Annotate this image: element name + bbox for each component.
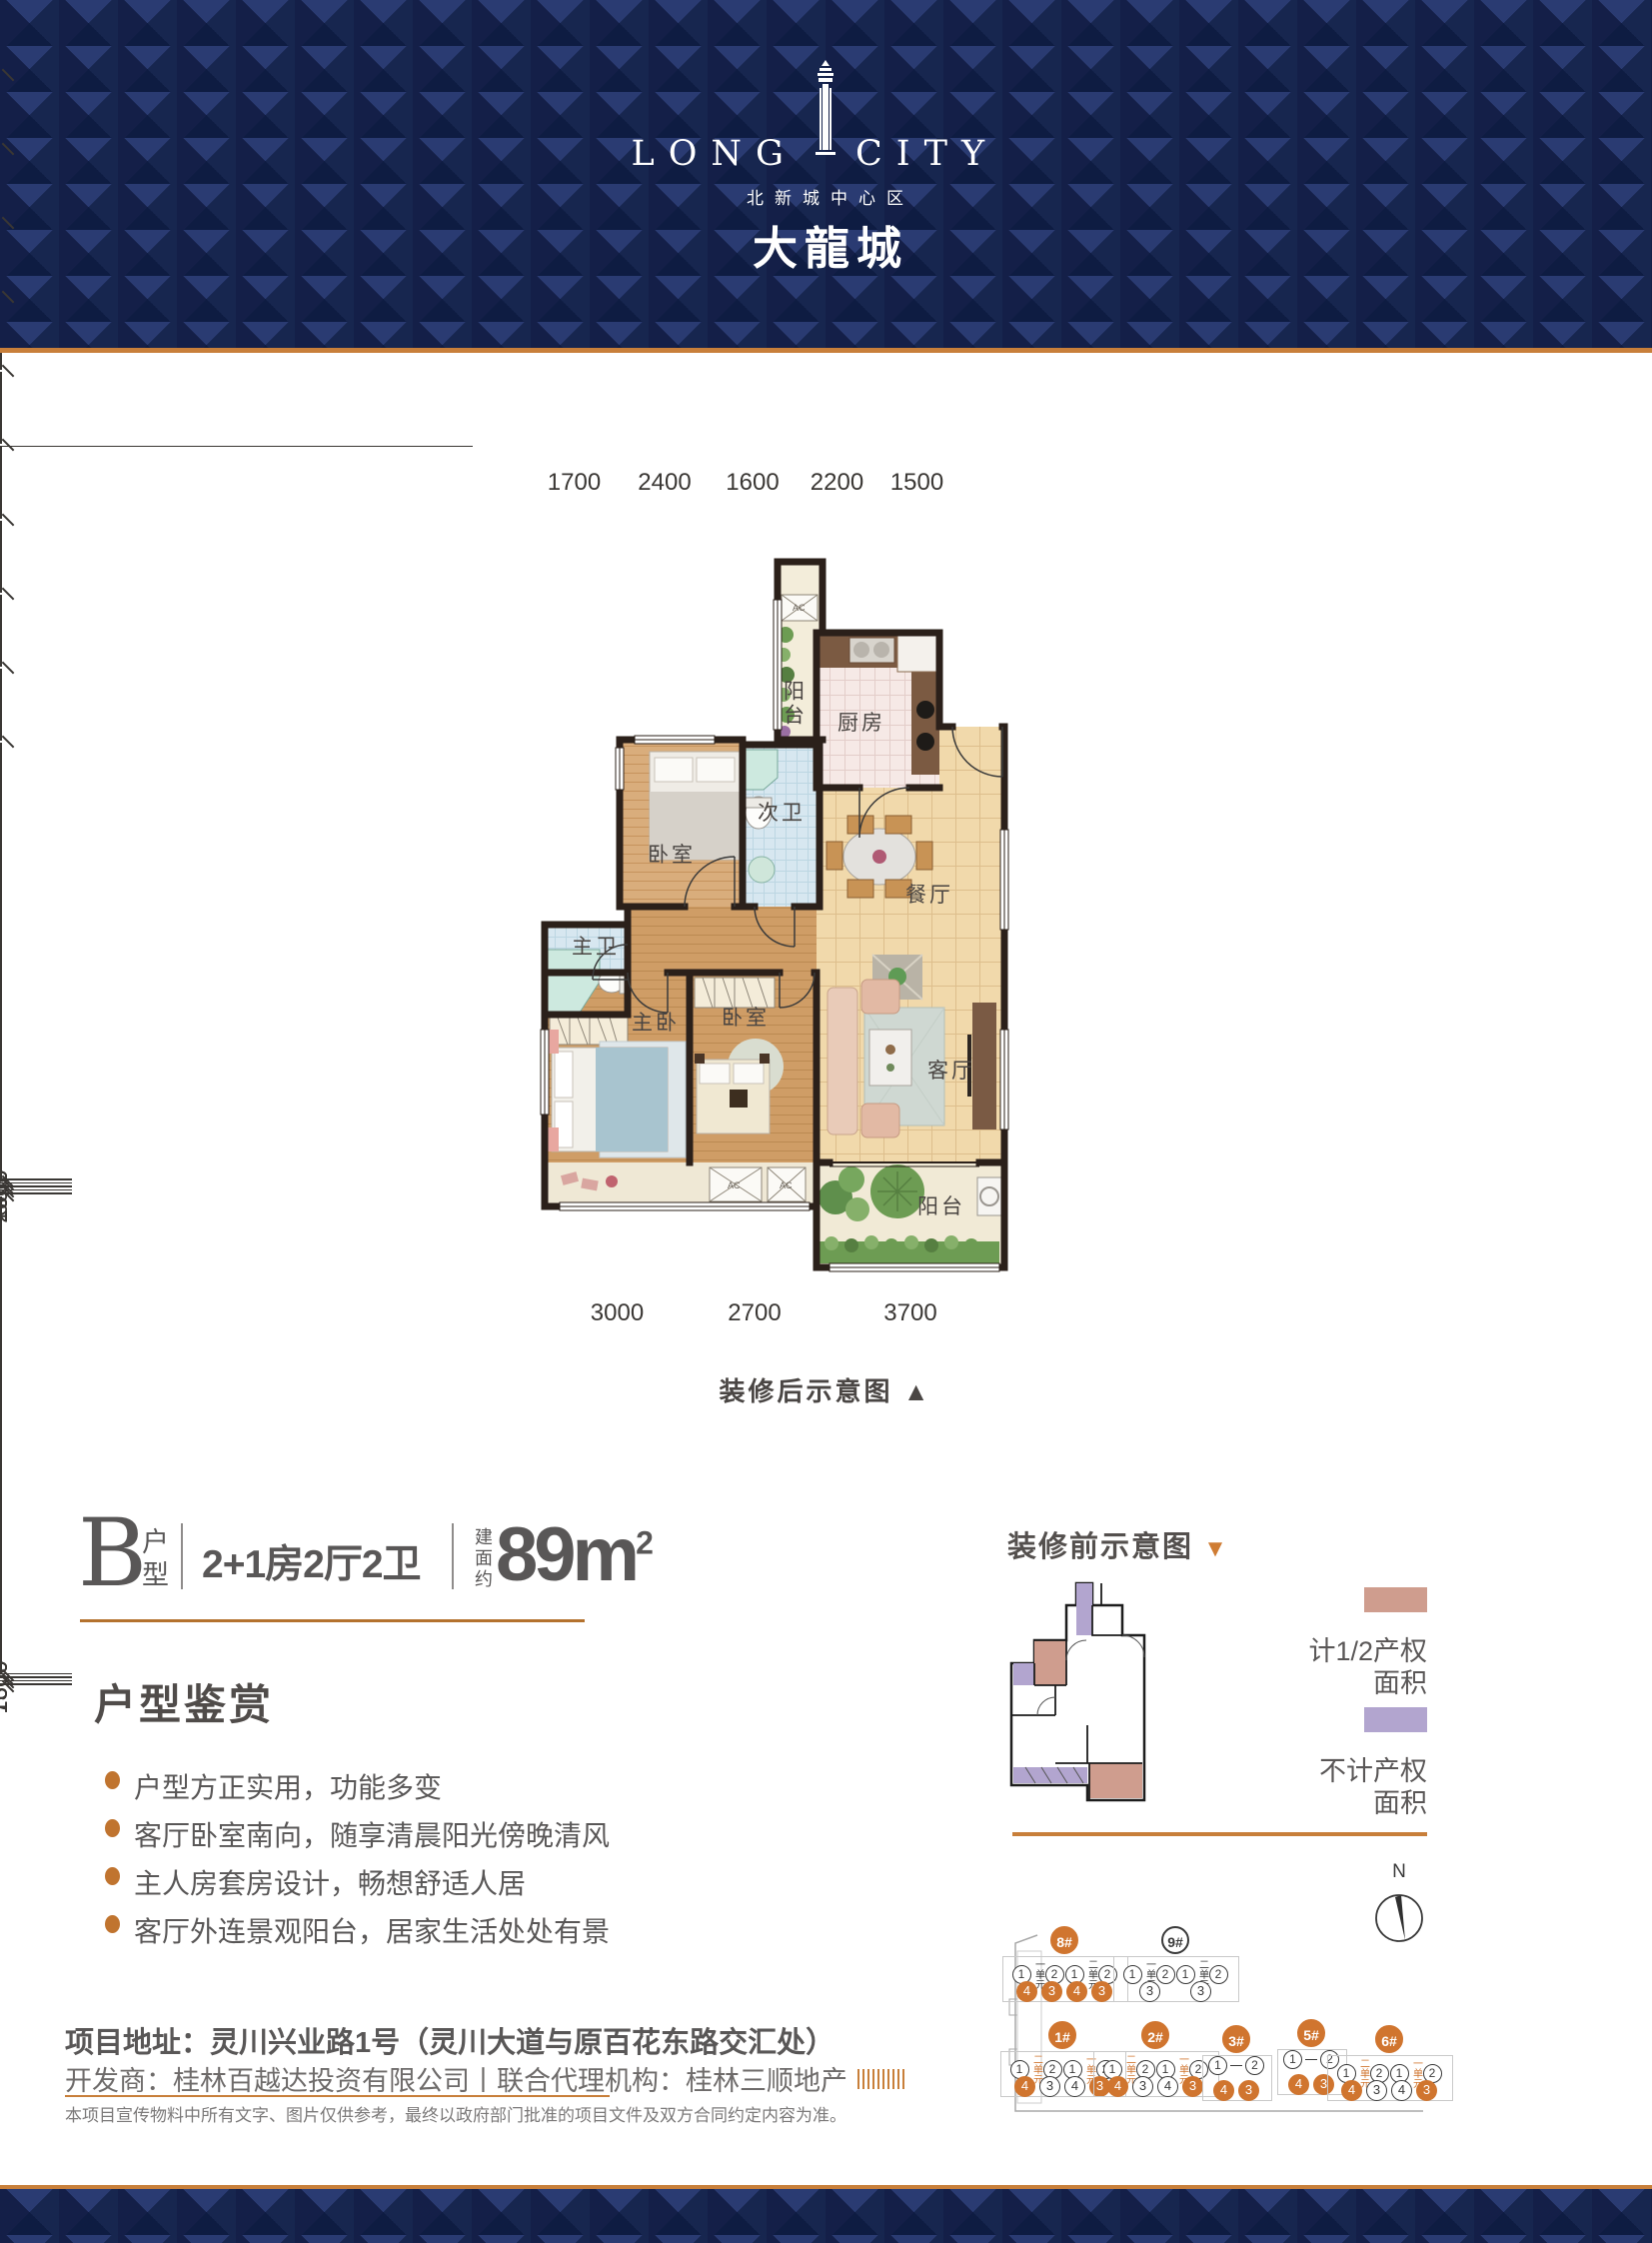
dim-slash-top xyxy=(2,438,15,451)
dim-label-text: 1600 xyxy=(0,1660,14,1713)
dim-tick-bottom xyxy=(0,595,2,667)
site-unit-circle: 3 xyxy=(1416,2080,1437,2101)
room-label-master: 主卧 xyxy=(632,1012,680,1035)
legend-label-no-rights-2: 面积 xyxy=(1227,1781,1427,1820)
site-unit-circle: 4 xyxy=(1014,2076,1035,2097)
room-label-bath-master: 主卫 xyxy=(572,936,620,959)
ac-label-3: AC xyxy=(793,603,806,613)
siteplan-divider xyxy=(1012,1832,1427,1836)
site-unit-circle: 3 xyxy=(1041,1981,1062,2002)
bullet-text-2: 客厅卧室南向，随享清晨阳光傍晚清风 xyxy=(134,1814,610,1854)
project-address: 项目地址：灵川兴业路1号（灵川大道与原百花东路交汇处） xyxy=(65,2019,834,2061)
after-caption-text: 装修后示意图 xyxy=(720,1376,893,1406)
header-accent-bar xyxy=(0,348,1652,353)
site-building-label-1#: 1# xyxy=(1048,2021,1076,2049)
site-building-6#: 6#1二单元21一单元24343 xyxy=(1319,2025,1459,2101)
bullet-dot-2 xyxy=(105,1819,120,1837)
site-unit-circle: 4 xyxy=(1016,1981,1037,2002)
room-label-bath2: 次卫 xyxy=(758,802,806,825)
appreciation-title: 户型鉴赏 xyxy=(94,1671,274,1732)
ac-label-1: AC xyxy=(728,1180,741,1190)
dim-tick-top xyxy=(0,372,2,444)
dim-label-top-0: 1700 xyxy=(525,469,625,497)
dim-tick-bottom xyxy=(0,669,2,741)
barcode-decoration xyxy=(857,2069,905,2089)
address-divider xyxy=(65,2095,610,2097)
legend-swatch-half-rights xyxy=(1364,1587,1427,1612)
site-nums-row: 4343 xyxy=(1319,2080,1459,2101)
site-unit-circle: 3 xyxy=(1190,1981,1211,2002)
unit-letter-label: 户型 xyxy=(134,1527,173,1597)
dim-label-bottom-2: 3700 xyxy=(860,1299,960,1327)
brand-subtitle: 北新城中心区 xyxy=(426,184,1235,209)
unit-title-underline xyxy=(80,1619,585,1622)
site-unit-circle: 4 xyxy=(1288,2074,1309,2095)
site-nums-row: 33 xyxy=(1105,1981,1245,2002)
site-building-label-9#: 9# xyxy=(1161,1926,1189,1954)
bullet-dot-4 xyxy=(105,1915,120,1933)
dim-line-left xyxy=(0,743,2,1178)
unit-area-label: 建面约 xyxy=(470,1527,496,1593)
brand-name-right: CITY xyxy=(855,134,1115,174)
dim-label-top-1: 2400 xyxy=(615,469,715,497)
site-unit-circle: 3 xyxy=(1132,2076,1153,2097)
unit-area-value: 89m2 xyxy=(496,1511,654,1598)
bullet-text-1: 户型方正实用，功能多变 xyxy=(134,1766,442,1806)
after-caption: 装修后示意图 ▲ xyxy=(576,1371,1075,1408)
dim-label-bottom-0: 3000 xyxy=(568,1299,668,1327)
ac-label-2: AC xyxy=(780,1180,793,1190)
room-label-dining: 餐厅 xyxy=(905,884,953,907)
footer-banner xyxy=(0,2189,1652,2243)
before-caption: 装修前示意图 ▼ xyxy=(1007,1523,1229,1565)
unit-area-number: 89m xyxy=(496,1512,636,1597)
poster-page: LONG CITY 北新城中心区 大龍城 xyxy=(0,0,1652,2243)
before-caption-text: 装修前示意图 xyxy=(1007,1531,1193,1563)
bullet-dot-3 xyxy=(105,1867,120,1885)
site-unit-circle: 4 xyxy=(1213,2080,1234,2101)
developer-line: 开发商：桂林百越达投资有限公司丨联合代理机构：桂林三顺地产 xyxy=(65,2059,905,2098)
dim-line-bottom xyxy=(0,446,473,448)
site-unit-circle: 4 xyxy=(1341,2080,1362,2101)
site-unit-circle: 3 xyxy=(1039,2076,1060,2097)
site-unit-connector xyxy=(1305,2059,1317,2060)
dim-slash-bottom xyxy=(2,736,15,749)
site-unit-circle: 1 xyxy=(1208,2056,1227,2075)
floor-plan: 阳台 厨房 次卫 卧室 餐厅 主卫 主卧 卧室 客厅 阳台 AC AC AC xyxy=(500,530,1159,1309)
disclaimer-text: 本项目宣传物料中所有文字、图片仅供参考，最终以政府部门批准的项目文件及双方合同约… xyxy=(65,2101,846,2126)
brand-title-cn: 大龍城 xyxy=(426,212,1235,277)
unit-area-sup: 2 xyxy=(636,1525,654,1561)
dim-label-text: 600 xyxy=(0,1175,14,1215)
site-building-label-2#: 2# xyxy=(1141,2021,1169,2049)
room-label-balcony-top: 阳台 xyxy=(782,680,805,728)
site-unit-circle: 4 xyxy=(1107,2076,1128,2097)
schematic-plan xyxy=(1007,1575,1147,1807)
divider-2 xyxy=(452,1523,454,1589)
up-triangle-icon: ▲ xyxy=(903,1376,932,1406)
dim-tick-bottom xyxy=(0,447,2,519)
site-unit-circle: 4 xyxy=(1391,2080,1412,2101)
header-banner xyxy=(0,0,1652,348)
site-building-label-6#: 6# xyxy=(1375,2025,1403,2053)
tower-icon xyxy=(806,60,845,160)
room-label-bedroom1: 卧室 xyxy=(648,844,696,867)
room-label-kitchen: 厨房 xyxy=(837,712,885,735)
developer-text: 开发商：桂林百越达投资有限公司丨联合代理机构：桂林三顺地产 xyxy=(65,2059,847,2098)
site-building-label-8#: 8# xyxy=(1050,1926,1078,1954)
dim-tick-bottom xyxy=(0,521,2,593)
room-label-living: 客厅 xyxy=(927,1060,975,1083)
bullet-text-4: 客厅外连景观阳台，居家生活处处有景 xyxy=(134,1910,610,1950)
dim-slash-bottom xyxy=(2,662,15,675)
down-triangle-icon: ▼ xyxy=(1203,1535,1229,1562)
site-unit-circle: 4 xyxy=(1066,1981,1087,2002)
site-unit-circle: 4 xyxy=(1064,2076,1085,2097)
bullet-text-3: 主人房套房设计，畅想舒适人居 xyxy=(134,1862,526,1902)
north-label: N xyxy=(1392,1861,1406,1882)
dim-slash-bottom xyxy=(2,514,15,527)
dim-label-bottom-1: 2700 xyxy=(705,1299,805,1327)
bullet-dot-1 xyxy=(105,1771,120,1789)
dim-slash-bottom xyxy=(2,588,15,601)
dim-slash-top xyxy=(2,364,15,377)
unit-spec: 2+1房2厅2卫 xyxy=(202,1533,421,1589)
dim-label-top-4: 1500 xyxy=(867,469,967,497)
brand-name-left: LONG xyxy=(540,134,798,174)
site-building-9#: 9#1一单元21二单元233 xyxy=(1105,1926,1245,2002)
site-unit-circle: 3 xyxy=(1366,2080,1387,2101)
legend-swatch-no-rights xyxy=(1364,1707,1427,1732)
room-label-bedroom2: 卧室 xyxy=(722,1007,770,1030)
room-label-balcony-bottom: 阳台 xyxy=(917,1195,965,1218)
site-unit-circle: 1 xyxy=(1283,2050,1302,2069)
dim-line-right xyxy=(0,1196,2,1673)
divider-1 xyxy=(181,1523,183,1589)
site-unit-circle: 3 xyxy=(1139,1981,1160,2002)
legend-label-half-rights-2: 面积 xyxy=(1227,1661,1427,1700)
